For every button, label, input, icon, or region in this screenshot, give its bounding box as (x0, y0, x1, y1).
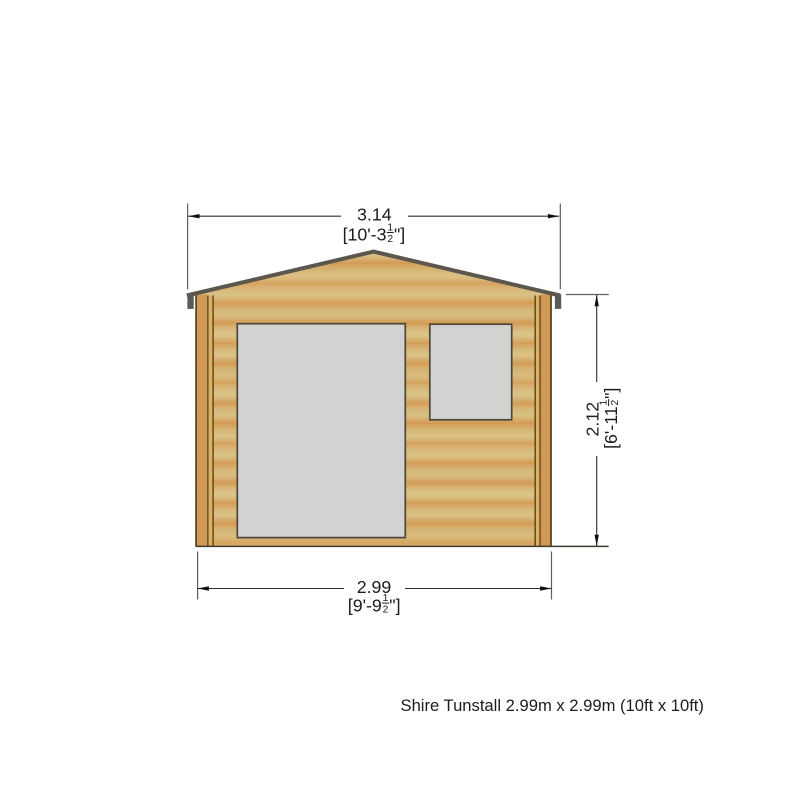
svg-text:[9'-9: [9'-9 (348, 595, 382, 615)
svg-text:1: 1 (599, 399, 610, 405)
svg-text:2: 2 (387, 234, 393, 245)
svg-text:3.14: 3.14 (357, 205, 392, 225)
svg-text:[6'-11: [6'-11 (601, 406, 621, 449)
svg-text:2.12: 2.12 (583, 402, 603, 437)
svg-text:Shire Tunstall 2.99m x 2.99m (: Shire Tunstall 2.99m x 2.99m (10ft x 10f… (401, 696, 704, 715)
svg-text:"]: "] (394, 225, 405, 245)
svg-text:"]: "] (389, 595, 400, 615)
svg-text:2: 2 (383, 604, 389, 615)
svg-text:2: 2 (610, 399, 621, 405)
svg-text:1: 1 (383, 593, 389, 604)
svg-text:"]: "] (601, 388, 621, 399)
svg-text:1: 1 (387, 223, 393, 234)
svg-text:[10'-3: [10'-3 (343, 225, 387, 245)
